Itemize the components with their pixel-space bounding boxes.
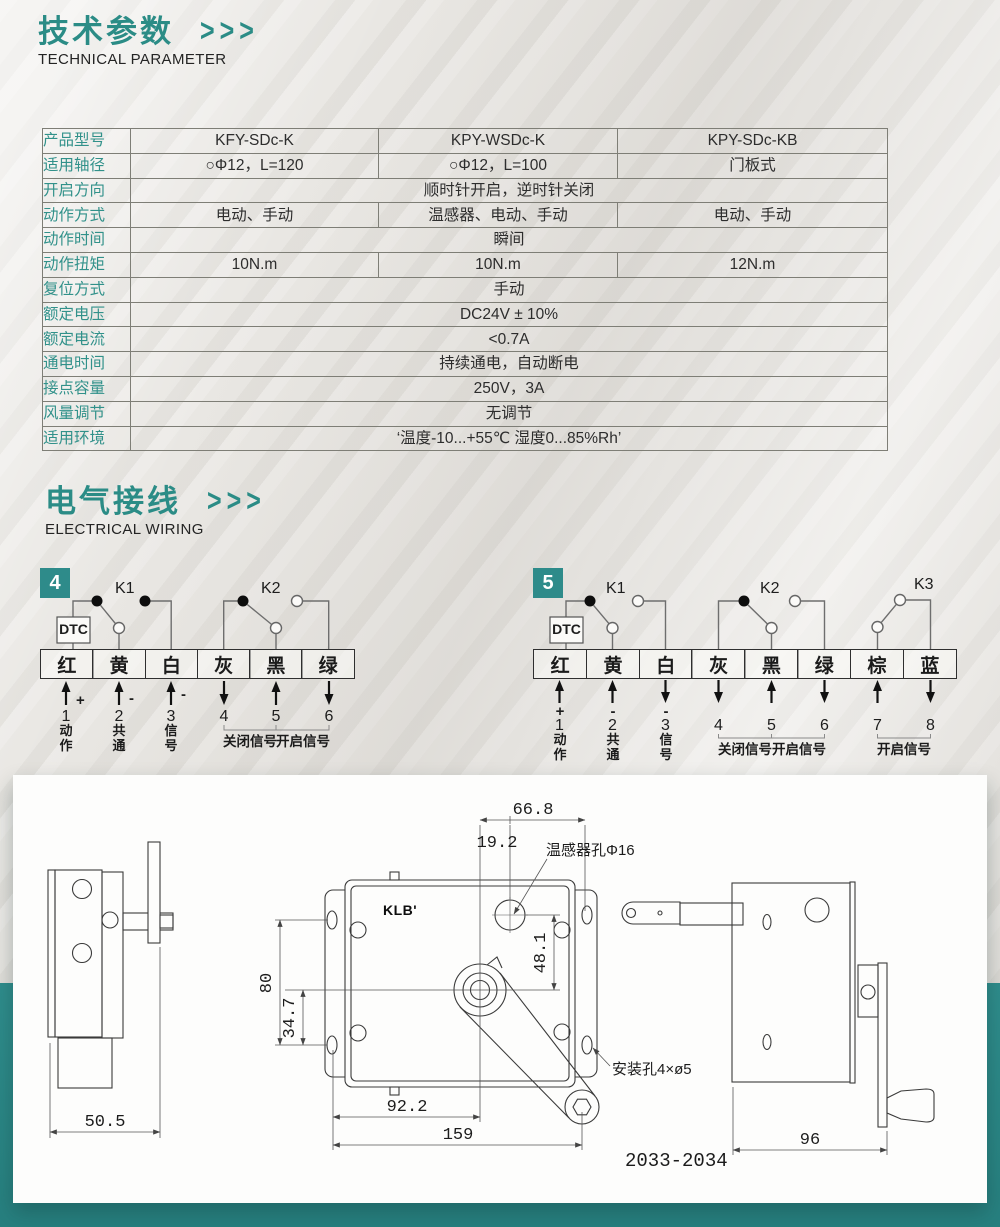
left-view-dims — [50, 947, 160, 1138]
spec-cell: ○Φ12，L=100 — [379, 153, 618, 178]
terminal-red: 红 — [40, 649, 94, 679]
k3-switch — [872, 595, 931, 650]
dim-50-5: 50.5 — [85, 1113, 126, 1132]
close-signal-label: 关闭信号 — [718, 741, 772, 757]
left-view — [48, 842, 173, 1088]
k1-label: K1 — [606, 580, 626, 597]
spec-cell: 瞬间 — [131, 228, 888, 253]
spec-label: 额定电流 — [43, 327, 131, 352]
tech-title-en: TECHNICAL PARAMETER — [38, 51, 259, 68]
table-row: 适用环境 ‘温度-10...+55℃ 湿度0...85%Rh’ — [43, 426, 888, 451]
dim-48-1: 48.1 — [532, 933, 551, 974]
open-signal-label: 开启信号 — [772, 741, 826, 757]
spec-cell: DC24V ± 10% — [131, 302, 888, 327]
k2-label: K2 — [760, 580, 780, 597]
spec-cell: 电动、手动 — [618, 203, 888, 228]
terminal-row: 红 黄 白 灰 黑 绿 — [40, 649, 355, 679]
spec-cell: 温感器、电动、手动 — [379, 203, 618, 228]
pin-label-signal: 信号 — [658, 733, 674, 762]
table-row: 风量调节 无调节 — [43, 401, 888, 426]
table-row: 适用轴径 ○Φ12，L=120 ○Φ12，L=100 门板式 — [43, 153, 888, 178]
table-row: 通电时间 持续通电，自动断电 — [43, 352, 888, 377]
chevrons-icon: >>> — [207, 486, 266, 517]
spec-cell: ○Φ12，L=120 — [131, 153, 379, 178]
spec-cell: 门板式 — [618, 153, 888, 178]
pin-label-signal: 信号 — [163, 724, 179, 753]
table-row: 动作方式 电动、手动 温感器、电动、手动 电动、手动 — [43, 203, 888, 228]
pin1-sign: + — [76, 692, 85, 709]
spec-cell: KPY-WSDc-K — [379, 129, 618, 154]
spec-cell: KFY-SDc-K — [131, 129, 379, 154]
spec-sheet-page: 技术参数 >>> TECHNICAL PARAMETER 产品型号 KFY-SD… — [0, 0, 1000, 1227]
diagram-4-badge: 4 — [40, 568, 70, 598]
spec-cell: 250V，3A — [131, 376, 888, 401]
spec-label: 通电时间 — [43, 352, 131, 377]
close-signal-label: 关闭信号 — [223, 733, 277, 749]
dim-96: 96 — [800, 1131, 820, 1150]
spec-cell: 无调节 — [131, 401, 888, 426]
k2-label: K2 — [261, 580, 281, 597]
table-row: 额定电压 DC24V ± 10% — [43, 302, 888, 327]
pin-number: 5 — [272, 708, 281, 725]
k2-switch — [719, 596, 825, 650]
spec-cell: 顺时针开启，逆时针关闭 — [131, 178, 888, 203]
spec-label: 产品型号 — [43, 129, 131, 154]
terminal-white: 白 — [639, 649, 693, 679]
wiring-title-en: ELECTRICAL WIRING — [45, 521, 266, 538]
tech-parameter-header: 技术参数 >>> TECHNICAL PARAMETER — [38, 16, 259, 68]
pin-label-common: 共通 — [111, 724, 127, 753]
k3-label: K3 — [914, 576, 934, 593]
terminal-black: 黑 — [744, 649, 798, 679]
drawing-panel: 50.5 — [13, 775, 987, 1203]
table-row: 动作扭矩 10N.m 10N.m 12N.m — [43, 252, 888, 277]
spec-cell: 电动、手动 — [131, 203, 379, 228]
spec-label: 风量调节 — [43, 401, 131, 426]
pin-label-action: 动作 — [58, 724, 74, 753]
pin2-sign: - — [129, 690, 134, 707]
terminal-brown: 棕 — [850, 649, 904, 679]
pin-number: 5 — [767, 717, 776, 734]
front-view — [325, 872, 599, 1124]
model-number: 2033-2034 — [625, 1150, 728, 1172]
technical-drawing: 50.5 — [13, 775, 987, 1203]
wiring-header: 电气接线 >>> ELECTRICAL WIRING — [45, 486, 266, 538]
mount-hole-label: 安装孔4×ø5 — [612, 1061, 692, 1078]
terminal-blue: 蓝 — [903, 649, 957, 679]
terminal-row: 红 黄 白 灰 黑 绿 棕 蓝 — [533, 649, 957, 679]
pin-arrows — [62, 681, 334, 705]
k2-switch — [224, 596, 329, 650]
table-row: 开启方向 顺时针开启，逆时针关闭 — [43, 178, 888, 203]
dim-80: 80 — [258, 973, 277, 993]
pin-number: 4 — [220, 708, 229, 725]
terminal-gray: 灰 — [691, 649, 745, 679]
dim-92-2: 92.2 — [387, 1098, 428, 1117]
spec-label: 动作方式 — [43, 203, 131, 228]
pin-arrows — [555, 680, 935, 703]
pin-number: 6 — [820, 717, 829, 734]
spec-label: 开启方向 — [43, 178, 131, 203]
spec-table: 产品型号 KFY-SDc-K KPY-WSDc-K KPY-SDc-KB 适用轴… — [42, 128, 888, 451]
terminal-yellow: 黄 — [92, 649, 146, 679]
spec-cell: ‘温度-10...+55℃ 湿度0...85%Rh’ — [131, 426, 888, 451]
spec-label: 动作时间 — [43, 228, 131, 253]
spec-label: 适用轴径 — [43, 153, 131, 178]
table-row: 产品型号 KFY-SDc-K KPY-WSDc-K KPY-SDc-KB — [43, 129, 888, 154]
wiring-diagram-5: DTC K1 K2 K3 + - - 1 2 3 4 5 6 7 — [528, 565, 968, 780]
dim-159: 159 — [443, 1126, 474, 1145]
spec-label: 动作扭矩 — [43, 252, 131, 277]
spec-cell: 持续通电，自动断电 — [131, 352, 888, 377]
table-row: 复位方式 手动 — [43, 277, 888, 302]
spec-cell: 10N.m — [131, 252, 379, 277]
spec-label: 复位方式 — [43, 277, 131, 302]
spec-cell: 手动 — [131, 277, 888, 302]
terminal-white: 白 — [145, 649, 199, 679]
pin3-sign: - — [181, 686, 186, 703]
dtc-label: DTC — [59, 621, 88, 637]
side-view — [622, 882, 934, 1127]
spec-label: 适用环境 — [43, 426, 131, 451]
open-signal-label: 开启信号 — [276, 733, 330, 749]
terminal-black: 黑 — [249, 649, 303, 679]
pin-number: 6 — [325, 708, 334, 725]
dtc-label: DTC — [552, 621, 581, 637]
dim-19-2: 19.2 — [477, 834, 518, 853]
wiring-title-cn: 电气接线 — [45, 486, 181, 517]
spec-label: 接点容量 — [43, 376, 131, 401]
pin-number: 7 — [873, 717, 882, 734]
wiring-diagram-4: DTC K1 K2 + - - 1 2 3 4 5 6 关闭信号 开启信号 — [35, 565, 365, 780]
dim-34-7: 34.7 — [281, 998, 300, 1039]
dim-66-8: 66.8 — [513, 801, 554, 820]
spec-cell: KPY-SDc-KB — [618, 129, 888, 154]
table-row: 动作时间 瞬间 — [43, 228, 888, 253]
terminal-red: 红 — [533, 649, 587, 679]
spec-cell: 12N.m — [618, 252, 888, 277]
pin-number: 8 — [926, 717, 935, 734]
open-signal-label-2: 开启信号 — [877, 741, 931, 757]
klb-logo: KLB' — [383, 902, 417, 918]
terminal-green: 绿 — [797, 649, 851, 679]
pin-label-action: 动作 — [552, 733, 568, 762]
k1-label: K1 — [115, 580, 135, 597]
terminal-yellow: 黄 — [586, 649, 640, 679]
spec-cell: 10N.m — [379, 252, 618, 277]
terminal-green: 绿 — [301, 649, 355, 679]
pin-number: 4 — [714, 717, 723, 734]
table-row: 接点容量 250V，3A — [43, 376, 888, 401]
terminal-gray: 灰 — [197, 649, 251, 679]
tech-title-cn: 技术参数 — [38, 16, 174, 47]
chevrons-icon: >>> — [200, 16, 259, 47]
diagram-5-badge: 5 — [533, 568, 563, 598]
table-row: 额定电流 <0.7A — [43, 327, 888, 352]
sensor-hole-label: 温感器孔Φ16 — [546, 842, 635, 859]
pin-label-common: 共通 — [605, 733, 621, 762]
spec-label: 额定电压 — [43, 302, 131, 327]
spec-cell: <0.7A — [131, 327, 888, 352]
